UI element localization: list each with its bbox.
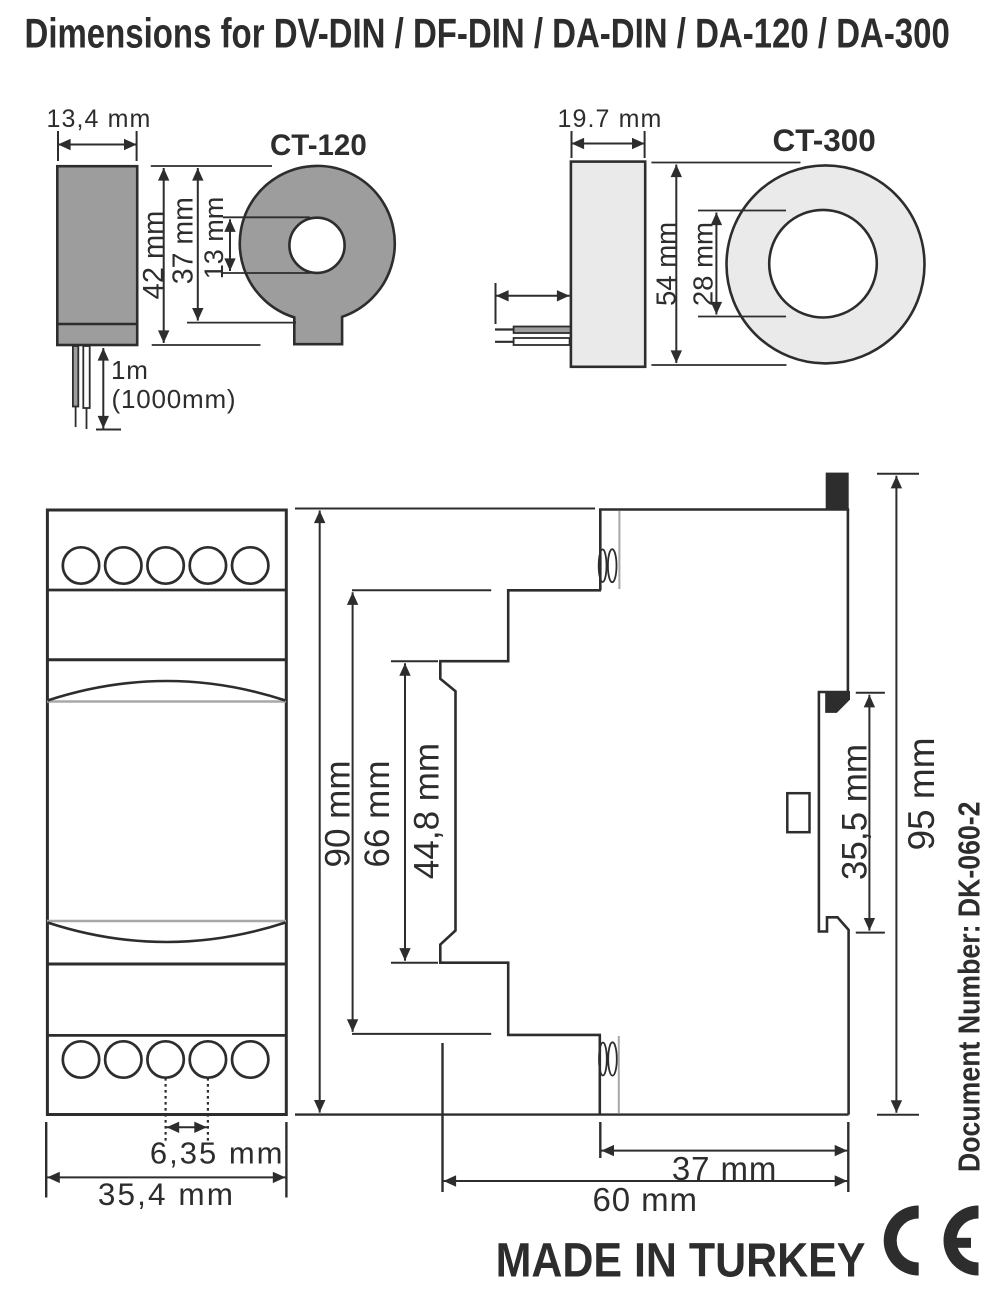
svg-text:13 mm: 13 mm — [199, 197, 229, 280]
svg-text:MADE IN TURKEY: MADE IN TURKEY — [496, 1233, 866, 1287]
svg-text:Document Number: DK-060-2: Document Number: DK-060-2 — [953, 801, 987, 1172]
svg-text:44,8 mm: 44,8 mm — [408, 743, 447, 879]
svg-text:60 mm: 60 mm — [593, 1181, 698, 1218]
svg-text:CT-120: CT-120 — [270, 129, 367, 162]
svg-text:42 mm: 42 mm — [138, 211, 170, 300]
svg-text:CT-300: CT-300 — [773, 122, 876, 158]
svg-text:35,5 mm: 35,5 mm — [836, 744, 875, 880]
svg-text:1m: 1m — [111, 355, 149, 385]
svg-text:19.7 mm: 19.7 mm — [558, 105, 663, 133]
svg-text:(1000mm): (1000mm) — [112, 384, 237, 414]
svg-text:13,4 mm: 13,4 mm — [47, 105, 152, 133]
svg-text:6,35 mm: 6,35 mm — [150, 1136, 285, 1171]
svg-text:35,4 mm: 35,4 mm — [98, 1176, 235, 1212]
svg-text:54 mm: 54 mm — [651, 222, 682, 306]
svg-text:37 mm: 37 mm — [168, 197, 200, 284]
svg-text:95 mm: 95 mm — [901, 737, 942, 850]
svg-text:66 mm: 66 mm — [358, 761, 397, 868]
svg-text:90 mm: 90 mm — [318, 761, 357, 868]
svg-text:Dimensions for DV-DIN / DF-DIN: Dimensions for DV-DIN / DF-DIN / DA-DIN … — [25, 11, 950, 58]
svg-text:28 mm: 28 mm — [687, 222, 718, 306]
